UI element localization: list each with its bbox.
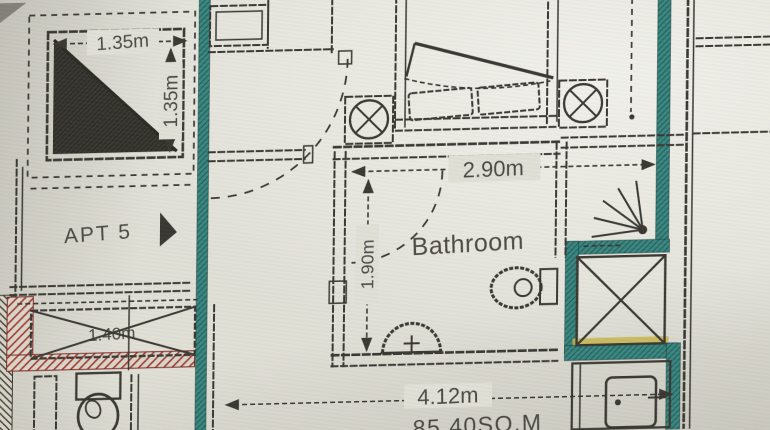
bathroom-depth-dimension: 1.90m	[355, 180, 380, 351]
bed	[395, 0, 559, 131]
scan-tilt-layer: 1.35m 1.35m APT 5	[0, 0, 770, 430]
bedroom-width-dimension: 2.90m	[352, 150, 654, 185]
wc-toilet-icon	[76, 373, 121, 430]
bathroom-depth-label: 1.90m	[357, 239, 378, 290]
apartment-entrance-label: APT 5	[63, 212, 177, 249]
entry-arrow-icon	[160, 212, 177, 246]
floor-plan-svg: 1.35m 1.35m APT 5	[0, 0, 770, 430]
apartment-label: APT 5	[64, 220, 133, 248]
bathroom-label: Bathroom	[411, 227, 524, 262]
pillow	[408, 88, 472, 121]
bedside-light-right-icon	[559, 80, 607, 128]
bedroom-width-label: 2.90m	[463, 155, 524, 183]
teal-walls	[195, 0, 684, 430]
sink-icon	[381, 323, 443, 354]
duct-shaft	[577, 255, 666, 345]
toilet-icon	[491, 267, 557, 309]
scan-edge-artifact	[0, 3, 26, 28]
shower-length-label: 1.40m	[88, 323, 136, 345]
bedside-light-left-icon	[345, 96, 393, 144]
shaft-depth-dimension: 1.35m	[161, 75, 183, 128]
hall-door-swing	[210, 51, 351, 199]
wall-light-icon	[584, 181, 648, 247]
blanket-fold	[414, 40, 553, 81]
shaft-width-dimension: 1.35m	[96, 30, 150, 55]
floorplan-scan: 1.35m 1.35m APT 5	[0, 0, 770, 430]
shaft-dim-depth: 1.35m	[159, 49, 183, 152]
floor-area-label: 85.40SQ.M	[412, 409, 542, 430]
wardrobe	[210, 5, 268, 46]
wc-door-leaf	[34, 376, 57, 430]
overall-width-label: 4.12m	[417, 382, 478, 410]
